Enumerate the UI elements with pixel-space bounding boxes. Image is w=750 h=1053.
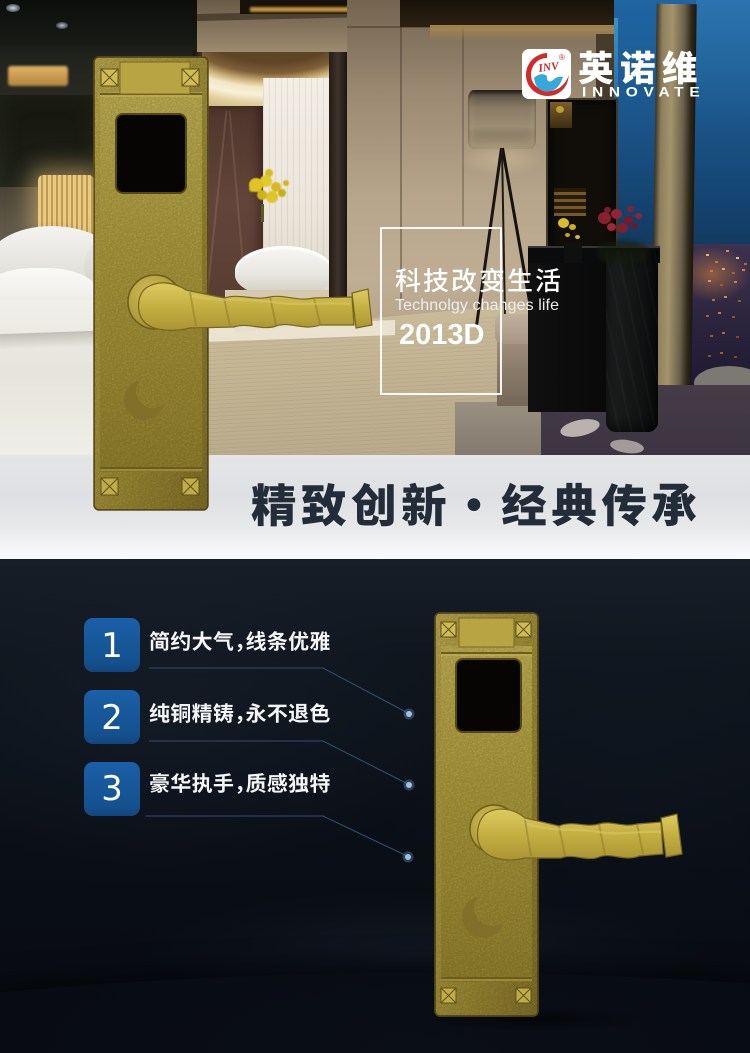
svg-text:INV: INV bbox=[537, 60, 561, 75]
svg-text:®: ® bbox=[559, 53, 565, 62]
